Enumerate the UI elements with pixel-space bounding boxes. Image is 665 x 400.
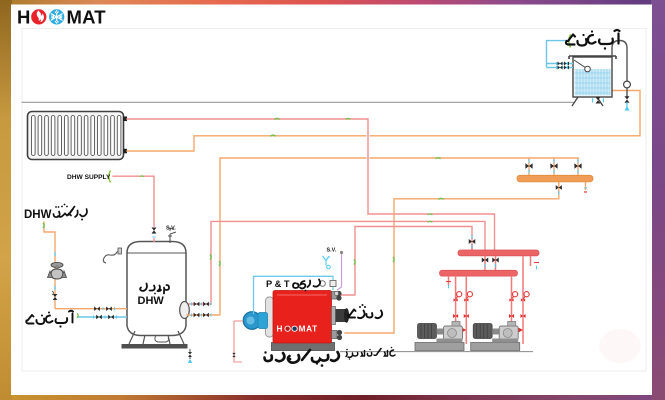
svg-text:DHW SUPPLY: DHW SUPPLY — [67, 174, 111, 181]
svg-text:S.V.: S.V. — [166, 226, 176, 232]
svg-text:DHW: DHW — [24, 209, 52, 221]
svg-text:S.V.: S.V. — [327, 248, 337, 254]
svg-text:H: H — [277, 325, 283, 334]
svg-text:P & T: P & T — [266, 279, 290, 289]
svg-text:MAT: MAT — [67, 6, 107, 27]
svg-text:MAT: MAT — [299, 325, 318, 334]
svg-text:H: H — [17, 6, 31, 27]
svg-text:DHW: DHW — [138, 295, 165, 307]
